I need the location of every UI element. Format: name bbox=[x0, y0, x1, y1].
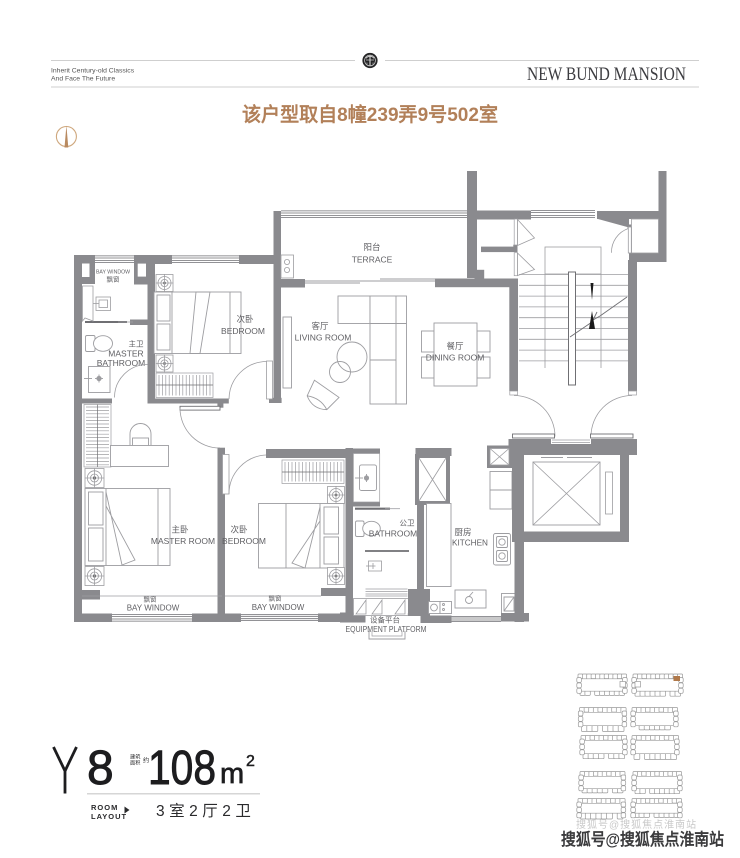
svg-text:搜狐号@搜狐焦点淮南站: 搜狐号@搜狐焦点淮南站 bbox=[561, 829, 724, 849]
svg-text:KITCHEN: KITCHEN bbox=[452, 539, 488, 548]
svg-text:BEDROOM: BEDROOM bbox=[221, 326, 265, 336]
svg-text:飘窗: 飘窗 bbox=[269, 594, 282, 603]
svg-text:DINING ROOM: DINING ROOM bbox=[426, 353, 485, 363]
svg-text:建筑: 建筑 bbox=[130, 753, 141, 761]
svg-text:LAYOUT: LAYOUT bbox=[91, 812, 127, 821]
svg-text:TERRACE: TERRACE bbox=[352, 255, 393, 265]
svg-text:And Face The Future: And Face The Future bbox=[51, 76, 115, 83]
svg-text:该户型取自8幢239弄9号502室: 该户型取自8幢239弄9号502室 bbox=[242, 103, 498, 126]
svg-text:BAY WINDOW: BAY WINDOW bbox=[96, 270, 130, 276]
svg-text:ROOM: ROOM bbox=[91, 803, 118, 812]
svg-text:MASTER ROOM: MASTER ROOM bbox=[151, 536, 215, 546]
svg-text:阳台: 阳台 bbox=[363, 242, 380, 252]
svg-text:Inherit Century-old Classics: Inherit Century-old Classics bbox=[51, 68, 135, 75]
svg-text:BAY WINDOW: BAY WINDOW bbox=[127, 604, 180, 613]
svg-text:3室2厅2卫: 3室2厅2卫 bbox=[156, 802, 255, 820]
svg-text:飘窗: 飘窗 bbox=[107, 275, 120, 284]
svg-text:飘窗: 飘窗 bbox=[144, 595, 157, 604]
svg-text:设备平台: 设备平台 bbox=[370, 615, 400, 625]
svg-text:2: 2 bbox=[246, 753, 255, 770]
svg-text:m: m bbox=[220, 758, 244, 790]
svg-text:主卧: 主卧 bbox=[171, 525, 189, 535]
svg-text:NEW BUND MANSION: NEW BUND MANSION bbox=[527, 64, 686, 85]
svg-text:次卧: 次卧 bbox=[230, 525, 248, 535]
svg-text:客厅: 客厅 bbox=[311, 321, 329, 331]
svg-text:BATHROOM: BATHROOM bbox=[369, 529, 417, 539]
svg-text:面积: 面积 bbox=[130, 760, 140, 767]
svg-text:8: 8 bbox=[87, 742, 114, 795]
svg-text:EQUIPMENT PLATFORM: EQUIPMENT PLATFORM bbox=[346, 625, 427, 634]
svg-text:主卫: 主卫 bbox=[129, 339, 144, 349]
svg-text:餐厅: 餐厅 bbox=[446, 341, 464, 351]
svg-text:108: 108 bbox=[148, 742, 216, 795]
svg-text:厨房: 厨房 bbox=[454, 527, 471, 537]
svg-text:次卧: 次卧 bbox=[236, 314, 254, 324]
svg-text:公卫: 公卫 bbox=[400, 519, 415, 528]
svg-text:搜狐号@搜狐焦点淮南站: 搜狐号@搜狐焦点淮南站 bbox=[576, 818, 697, 831]
svg-text:LIVING ROOM: LIVING ROOM bbox=[295, 333, 352, 343]
svg-text:BAY WINDOW: BAY WINDOW bbox=[252, 603, 305, 612]
svg-text:BEDROOM: BEDROOM bbox=[222, 536, 266, 546]
svg-text:MASTER: MASTER bbox=[108, 349, 143, 359]
